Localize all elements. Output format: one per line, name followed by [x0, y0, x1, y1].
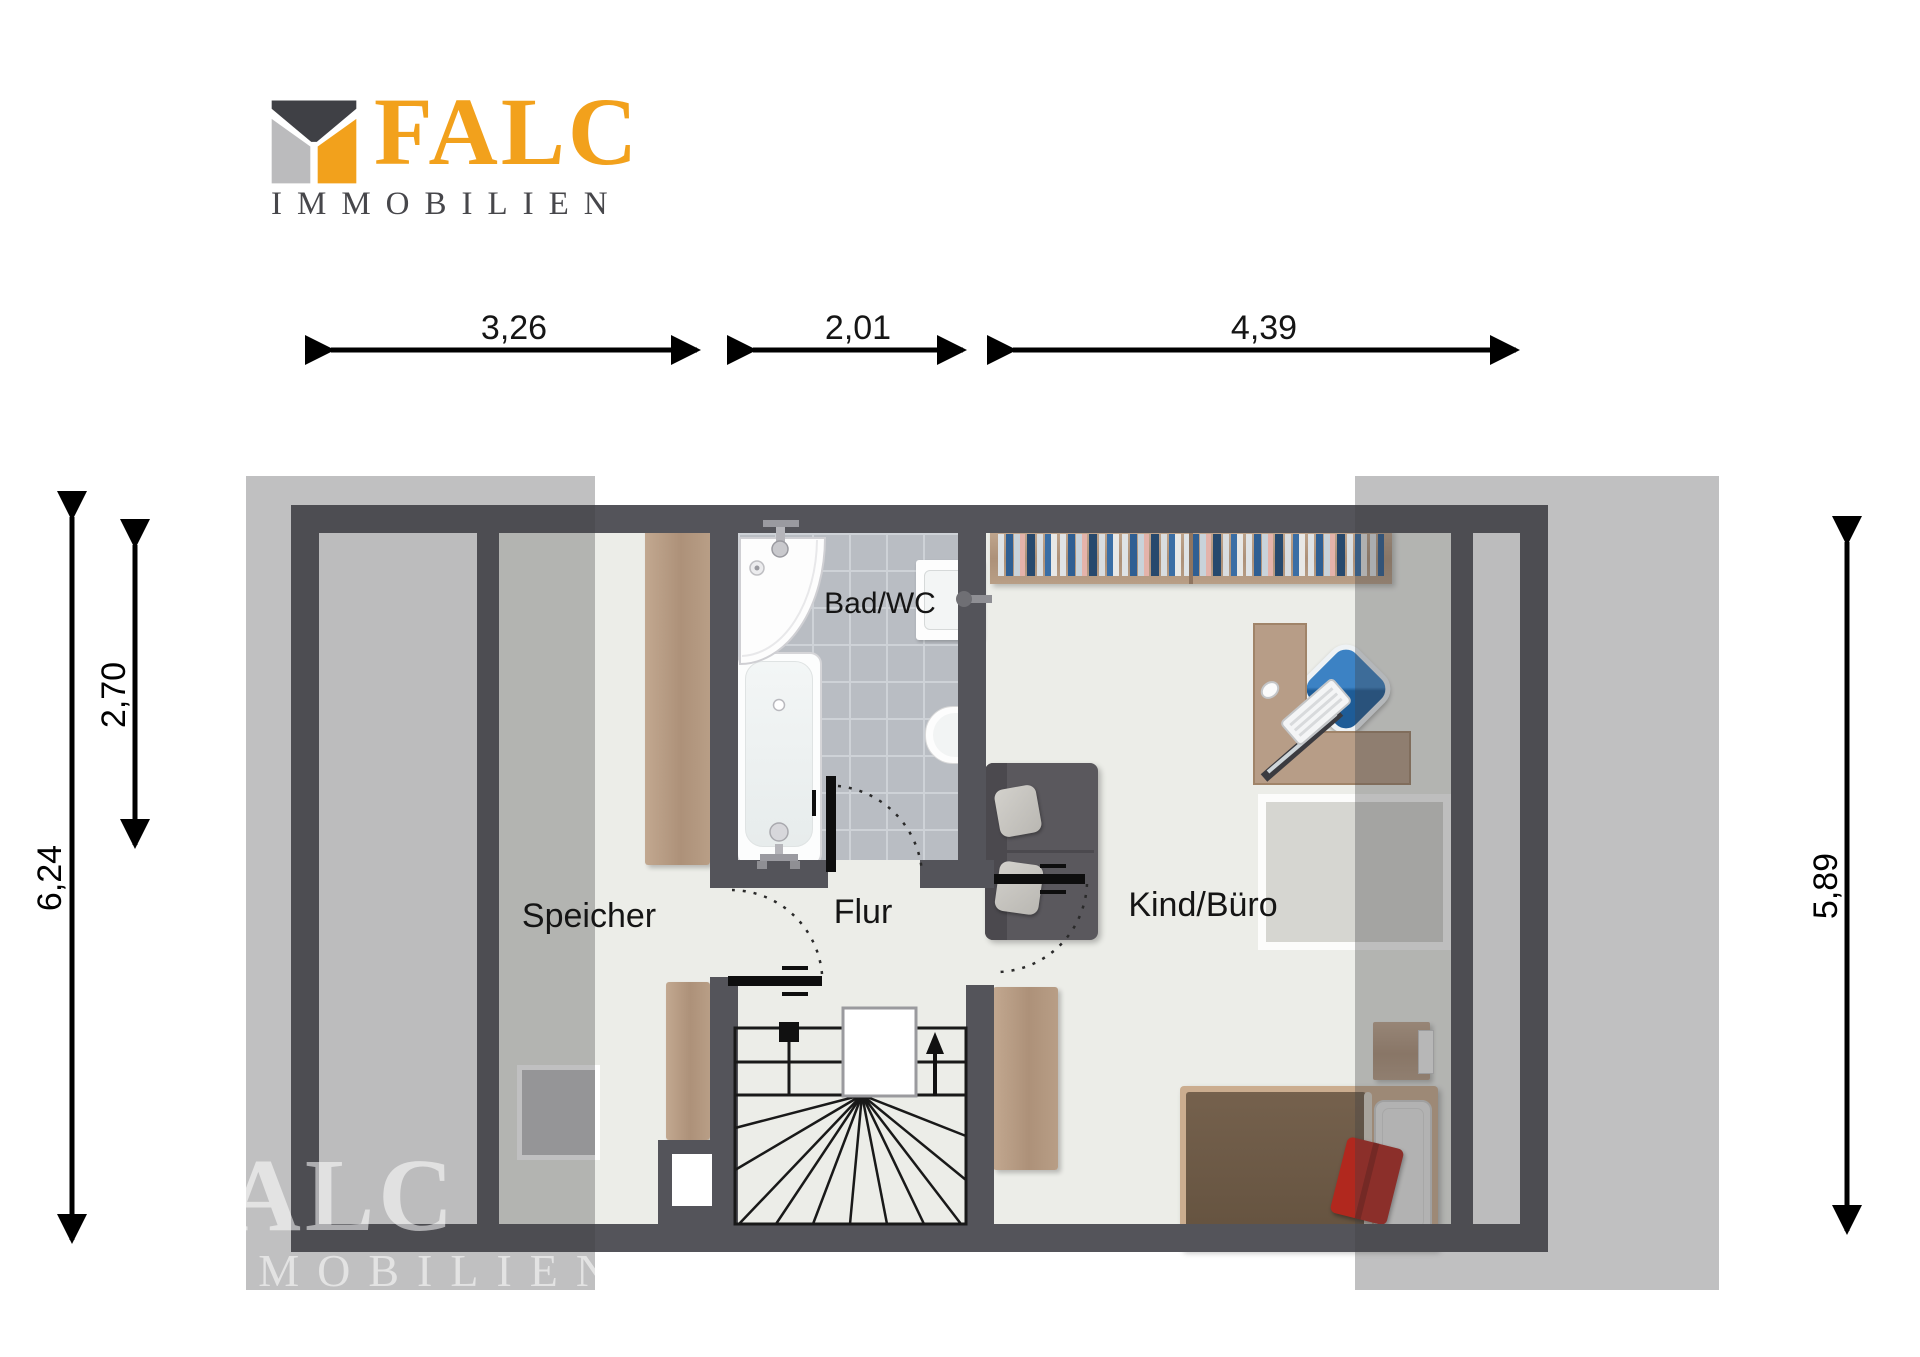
room-label-speicher: Speicher	[469, 896, 709, 936]
wardrobe-speicher-low	[666, 982, 710, 1140]
bookshelf-divider	[1189, 528, 1193, 584]
kind-door-handle	[1040, 864, 1066, 868]
wall-flur-kind-lower	[966, 985, 994, 1224]
bathtub-basin	[745, 661, 813, 847]
bookshelf	[990, 528, 1392, 584]
chimney-flue	[672, 1154, 712, 1206]
speicher-door-handle	[782, 966, 808, 970]
dim-label-5-89: 5,89	[1806, 816, 1846, 956]
dim-label-2-70: 2,70	[94, 625, 134, 765]
roof-slope-overlay-right	[1355, 476, 1719, 1290]
bed-blanket	[1186, 1092, 1366, 1244]
sofa	[985, 763, 1098, 940]
room-label-bad-wc: Bad/WC	[760, 584, 1000, 624]
wall-bathroom-right	[958, 533, 986, 860]
sofa-cushion-seam	[1007, 850, 1094, 853]
sofa-pillow-bottom	[994, 860, 1045, 916]
room-label-kind-buero: Kind/Büro	[1083, 885, 1323, 925]
wall-bathroom-left	[710, 533, 738, 888]
logo-subtitle-text: IMMOBILIEN	[271, 188, 623, 221]
dim-label-2-01: 2,01	[738, 308, 978, 348]
dim-label-6-24: 6,24	[30, 808, 70, 948]
dim-label-3-26: 3,26	[394, 308, 634, 348]
bathroom-door-handle	[812, 790, 816, 816]
floorplan-page: FALC IMMOBILIEN	[0, 0, 1920, 1357]
dim-label-4-39: 4,39	[1144, 308, 1384, 348]
kind-door-handle-2	[1040, 890, 1066, 894]
bathtub	[736, 652, 822, 866]
watermark-subtitle: IMMOBILIEN	[246, 1248, 595, 1290]
wardrobe-speicher-tall	[645, 523, 710, 865]
bathroom-door-leaf	[826, 776, 836, 872]
sofa-pillow-top	[993, 784, 1043, 839]
room-label-flur: Flur	[743, 892, 983, 932]
falc-logo-icon	[268, 92, 360, 190]
wall-bathroom-bottom-west	[710, 860, 828, 888]
kind-door-leaf	[994, 874, 1085, 884]
roof-slope-overlay-left: FALC IMMOBILIEN	[246, 476, 595, 1290]
watermark-brand: FALC	[246, 1144, 457, 1248]
wardrobe-kind-buero	[993, 987, 1058, 1170]
logo-brand-text: FALC	[374, 84, 640, 180]
speicher-door-handle-2	[782, 992, 808, 996]
speicher-door-leaf	[728, 976, 822, 986]
wall-bathroom-bottom-east	[920, 860, 994, 888]
